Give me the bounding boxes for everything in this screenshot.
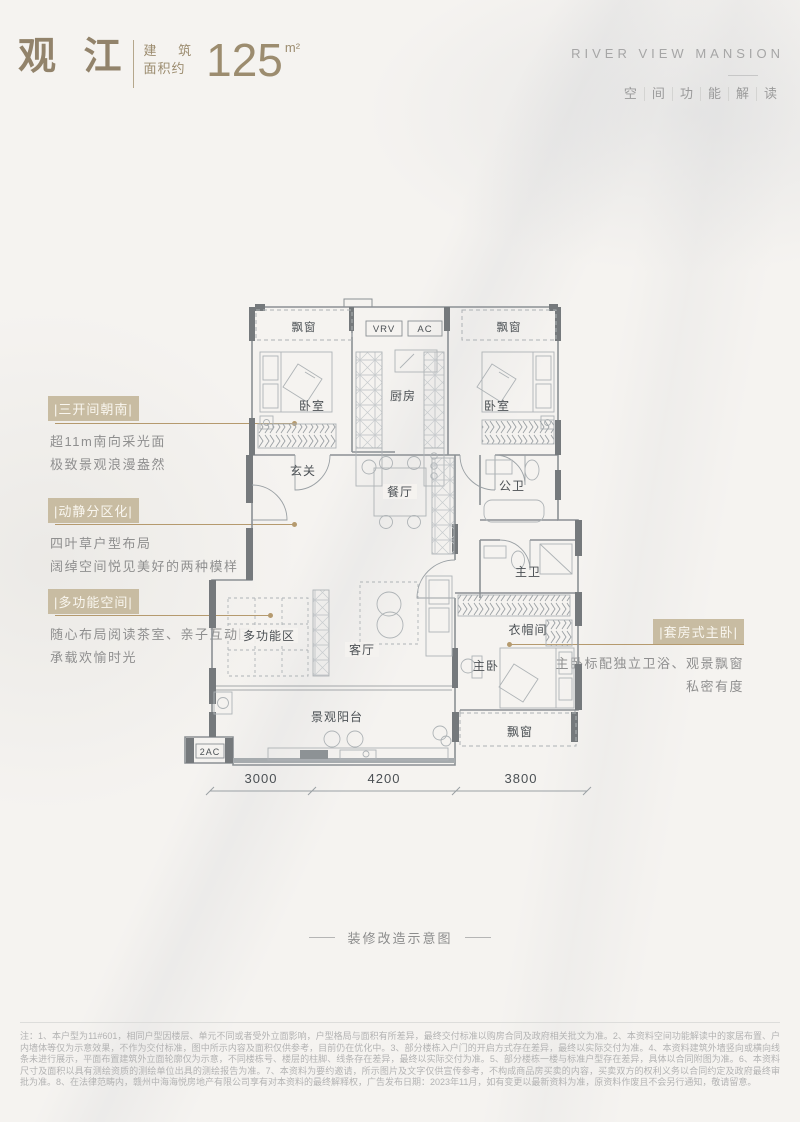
- subtitle-char: 读: [756, 87, 784, 101]
- subtitle-char: 能: [700, 87, 728, 101]
- label-bay-top-right: 飘窗: [497, 320, 522, 334]
- dim-4200: 4200: [368, 771, 401, 786]
- brand-name: RIVER VIEW MANSION: [571, 46, 784, 61]
- header-left: 观 江 建 筑 面积约 125 m²: [18, 36, 300, 88]
- label-master: 主卧: [473, 659, 499, 673]
- label-bedroom-right: 卧室: [484, 398, 510, 413]
- plan-wall-fills: [186, 304, 582, 763]
- label-dining: 餐厅: [387, 484, 413, 499]
- subtitle: 空 间 功 能 解 读: [571, 87, 784, 101]
- dim-3000: 3000: [245, 771, 278, 786]
- dimension-labels: 3000 4200 3800: [245, 771, 538, 786]
- subtitle-char: 功: [672, 87, 700, 101]
- floor-plan: 飘窗 飘窗 VRV AC 卧室 厨房 卧室 玄关 餐厅 公卫 主卫 多功能区 客…: [178, 292, 602, 804]
- label-bedroom-left: 卧室: [299, 398, 325, 413]
- area-label-bottom: 面积约: [144, 60, 201, 78]
- subtitle-char: 空: [617, 87, 644, 101]
- desc-1-line1: 超11m南向采光面: [50, 430, 166, 453]
- caption-text: 装修改造示意图: [347, 928, 452, 947]
- tag-three-bays-south: |三开间朝南|: [48, 396, 139, 421]
- disclaimer: 注：1、本户型为11#601，相同户型因楼层、单元不同或者受外立面影响，户型格局…: [20, 1022, 780, 1089]
- subtitle-char: 解: [728, 87, 756, 101]
- label-cloak: 衣帽间: [508, 622, 547, 637]
- plan-caption: 装修改造示意图: [0, 928, 800, 947]
- caption-dash-right: [465, 937, 491, 938]
- brand-rule: [728, 75, 758, 76]
- page-title: 观 江: [18, 36, 131, 80]
- caption-dash-left: [309, 937, 335, 938]
- tag-suite-master: |套房式主卧|: [653, 619, 744, 644]
- poster-page: 观 江 建 筑 面积约 125 m² RIVER VIEW MANSION 空 …: [0, 0, 800, 1122]
- tag-zoning: |动静分区化|: [48, 498, 139, 523]
- label-foyer: 玄关: [290, 463, 316, 478]
- area-label-top: 建 筑: [144, 42, 201, 60]
- desc-1-line2: 极致景观浪漫盎然: [50, 453, 166, 476]
- area-value: 125: [206, 38, 283, 82]
- tag-multi-function: |多功能空间|: [48, 589, 139, 614]
- area-labels: 建 筑 面积约: [144, 42, 201, 78]
- label-bath-public: 公卫: [499, 479, 525, 493]
- label-vrv: VRV: [373, 324, 395, 335]
- label-bath-master: 主卫: [515, 565, 541, 579]
- area-unit: m²: [285, 40, 300, 55]
- dimension-line: [206, 787, 591, 795]
- label-multi: 多功能区: [243, 629, 295, 643]
- label-bay-bottom: 飘窗: [507, 725, 533, 739]
- label-ac: AC: [417, 324, 432, 335]
- header-right: RIVER VIEW MANSION 空 间 功 能 解 读: [571, 46, 784, 101]
- label-kitchen: 厨房: [390, 388, 416, 403]
- subtitle-char: 间: [644, 87, 672, 101]
- label-bay-top-left: 飘窗: [292, 320, 317, 334]
- desc-1: 超11m南向采光面 极致景观浪漫盎然: [50, 430, 166, 476]
- title-divider: [133, 40, 134, 88]
- label-2ac: 2AC: [200, 747, 221, 757]
- label-living: 客厅: [349, 642, 375, 657]
- dim-3800: 3800: [505, 771, 538, 786]
- label-balcony: 景观阳台: [311, 709, 363, 724]
